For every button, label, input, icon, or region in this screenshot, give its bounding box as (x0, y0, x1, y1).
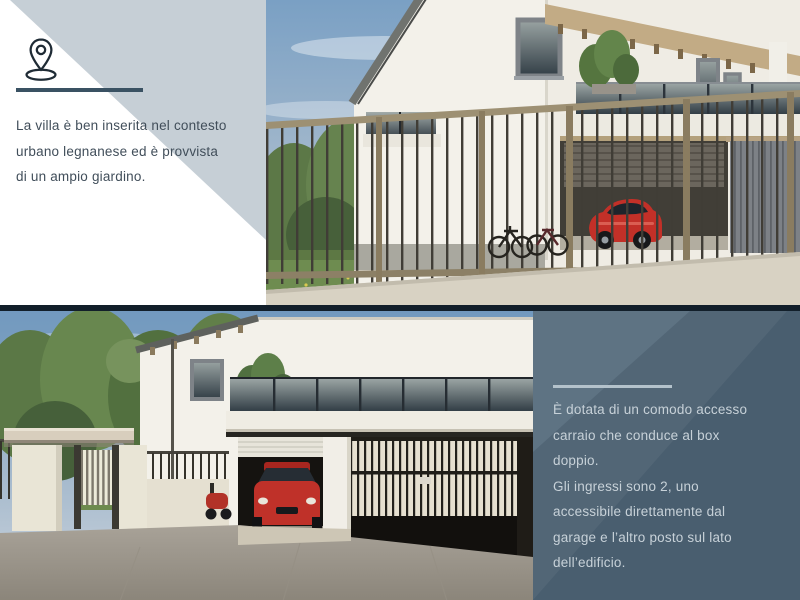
intro-panel: La villa è ben inserita nel contesto urb… (0, 0, 266, 305)
intro-text-line: urbano legnanese ed è provvista (16, 139, 227, 165)
villa-garage-illustration (0, 311, 533, 600)
intro-text-line: La villa è ben inserita nel contesto (16, 113, 227, 139)
access-text-line: È dotata di un comodo accesso (553, 397, 747, 423)
access-panel: È dotata di un comodo accesso carraio ch… (533, 311, 800, 600)
access-text-line: garage e l’altro posto sul lato (553, 525, 747, 551)
intro-text-line: di un ampio giardino. (16, 164, 227, 190)
access-text-line: accessibile direttamente dal (553, 499, 747, 525)
access-text-line: carraio che conduce al box (553, 423, 747, 449)
access-text-line: Gli ingressi sono 2, uno (553, 474, 747, 500)
access-text-block: È dotata di un comodo accesso carraio ch… (553, 397, 747, 576)
access-text-line: dell’edificio. (553, 550, 747, 576)
intro-text-block: La villa è ben inserita nel contesto urb… (16, 113, 227, 190)
access-divider-line (553, 385, 672, 388)
access-text-line: doppio. (553, 448, 747, 474)
location-pin-icon (21, 35, 61, 82)
villa-street-view-illustration (266, 0, 800, 305)
photo-villa-garage-view (0, 311, 533, 600)
slide: La villa è ben inserita nel contesto urb… (0, 0, 800, 600)
intro-divider-line (16, 88, 143, 92)
photo-villa-street-view (266, 0, 800, 305)
